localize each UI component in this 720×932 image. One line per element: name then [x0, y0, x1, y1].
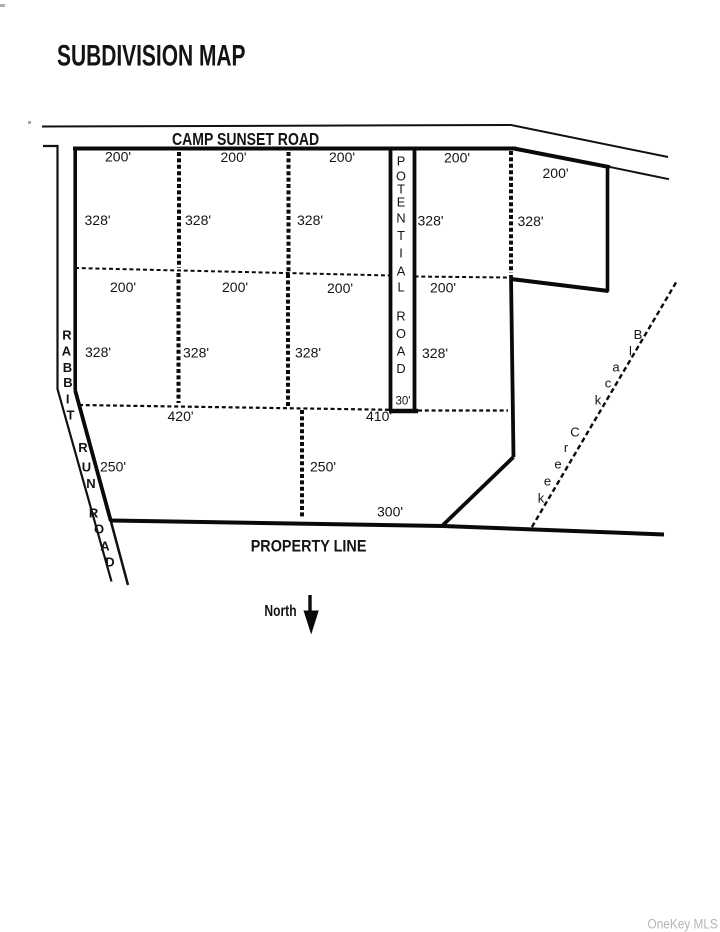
svg-text:200': 200' [327, 280, 353, 296]
svg-text:D: D [396, 361, 405, 376]
svg-text:R: R [62, 327, 72, 342]
svg-text:200': 200' [329, 149, 355, 165]
svg-text:200': 200' [105, 149, 131, 165]
svg-text:A: A [397, 344, 406, 359]
svg-text:North: North [264, 602, 296, 620]
svg-text:r: r [564, 440, 569, 455]
svg-text:SUBDIVISION MAP: SUBDIVISION MAP [57, 40, 245, 72]
svg-text:I: I [399, 246, 403, 261]
svg-text:e: e [544, 473, 551, 488]
svg-text:N: N [86, 476, 95, 491]
svg-text:R: R [78, 440, 88, 455]
svg-text:200': 200' [110, 279, 136, 295]
svg-text:k: k [538, 491, 545, 506]
svg-text:328': 328' [418, 213, 444, 229]
svg-text:O: O [396, 326, 406, 341]
svg-text:OneKey MLS: OneKey MLS [648, 917, 718, 932]
svg-text:I: I [66, 392, 70, 407]
svg-text:O: O [94, 522, 104, 537]
svg-text:T: T [67, 408, 75, 423]
svg-text:PROPERTY LINE: PROPERTY LINE [251, 537, 367, 555]
svg-text:R: R [89, 506, 99, 521]
svg-text:E: E [397, 195, 406, 210]
svg-text:e: e [554, 456, 561, 471]
svg-text:250': 250' [100, 459, 126, 475]
svg-text:A: A [100, 539, 110, 554]
svg-text:N: N [396, 211, 405, 226]
svg-text:200': 200' [444, 150, 470, 166]
svg-text:L: L [397, 279, 404, 294]
svg-text:l: l [629, 344, 632, 359]
svg-text:328': 328' [295, 345, 321, 361]
svg-text:200': 200' [221, 149, 247, 165]
svg-text:300': 300' [377, 504, 403, 520]
svg-text:200': 200' [543, 165, 569, 181]
svg-text:D: D [105, 555, 114, 570]
svg-text:200': 200' [222, 279, 248, 295]
svg-text:P: P [397, 154, 406, 169]
svg-text:30': 30' [396, 396, 411, 408]
svg-text:k: k [595, 393, 602, 408]
svg-text:328': 328' [518, 213, 544, 229]
svg-text:c: c [605, 375, 612, 390]
svg-text:328': 328' [183, 345, 209, 361]
svg-text:328': 328' [297, 212, 323, 228]
svg-text:B: B [634, 327, 643, 342]
svg-text:250': 250' [310, 459, 336, 475]
svg-text:328': 328' [85, 212, 111, 228]
svg-text:B: B [63, 375, 72, 390]
svg-text:A: A [397, 263, 406, 278]
svg-text:200': 200' [430, 280, 456, 296]
svg-text:328': 328' [185, 212, 211, 228]
svg-text:420': 420' [168, 408, 194, 424]
svg-text:U: U [82, 460, 91, 475]
svg-text:328': 328' [422, 345, 448, 361]
svg-text:410': 410' [366, 408, 392, 424]
svg-text:C: C [570, 425, 579, 440]
svg-text:T: T [397, 228, 405, 243]
svg-text:R: R [396, 309, 405, 324]
svg-text:B: B [63, 360, 72, 375]
svg-text:a: a [612, 359, 620, 374]
svg-text:A: A [62, 344, 72, 359]
svg-text:328': 328' [85, 344, 111, 360]
